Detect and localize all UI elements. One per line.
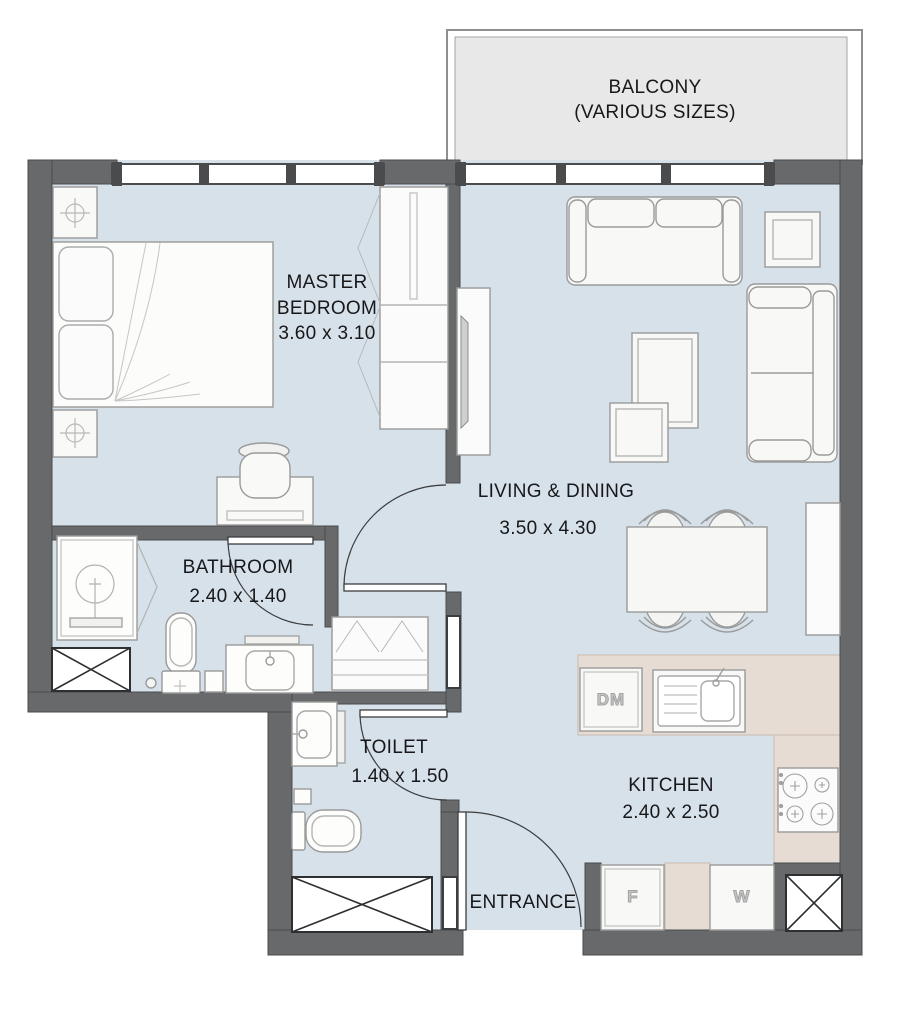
balcony-label: BALCONY bbox=[609, 75, 702, 101]
kitchen-label: KITCHEN bbox=[628, 773, 714, 799]
living-dining-dims: 3.50 x 4.30 bbox=[499, 516, 596, 542]
kitchen-dims: 2.40 x 2.50 bbox=[622, 800, 719, 826]
balcony-note: (VARIOUS SIZES) bbox=[574, 100, 735, 126]
floor-plan: BALCONY (VARIOUS SIZES) MASTER BEDROOM 3… bbox=[0, 0, 900, 1018]
pillow bbox=[59, 325, 113, 399]
fridge-label: F bbox=[627, 887, 638, 907]
entrance-door-leaf bbox=[458, 812, 466, 930]
washer-label: W bbox=[733, 887, 750, 907]
living-dining-label: LIVING & DINING bbox=[478, 479, 635, 505]
bedroom-door-leaf bbox=[344, 584, 446, 591]
toilet-label: TOILET bbox=[360, 735, 428, 761]
bathroom-door-leaf bbox=[228, 537, 313, 544]
master-bedroom-label: MASTER BEDROOM bbox=[247, 270, 407, 322]
toilet-tank bbox=[162, 671, 200, 693]
desk-drawer bbox=[227, 511, 303, 520]
bathroom-dims: 2.40 x 1.40 bbox=[189, 584, 286, 610]
floor-plan-drawing bbox=[0, 0, 900, 1018]
dishwasher-label: DM bbox=[597, 690, 625, 710]
cabinet bbox=[806, 503, 840, 635]
entrance-label: ENTRANCE bbox=[470, 890, 577, 916]
bathroom-label: BATHROOM bbox=[183, 555, 294, 581]
hall-closet bbox=[332, 617, 428, 690]
wc-tank bbox=[292, 812, 305, 850]
toilet-door-leaf bbox=[360, 710, 447, 717]
tv bbox=[461, 316, 468, 428]
dining-table bbox=[627, 527, 767, 612]
master-bedroom-dims: 3.60 x 3.10 bbox=[278, 321, 375, 347]
toilet-dims: 1.40 x 1.50 bbox=[351, 764, 448, 790]
desk-chair-seat bbox=[240, 453, 290, 498]
pillow bbox=[59, 247, 113, 321]
